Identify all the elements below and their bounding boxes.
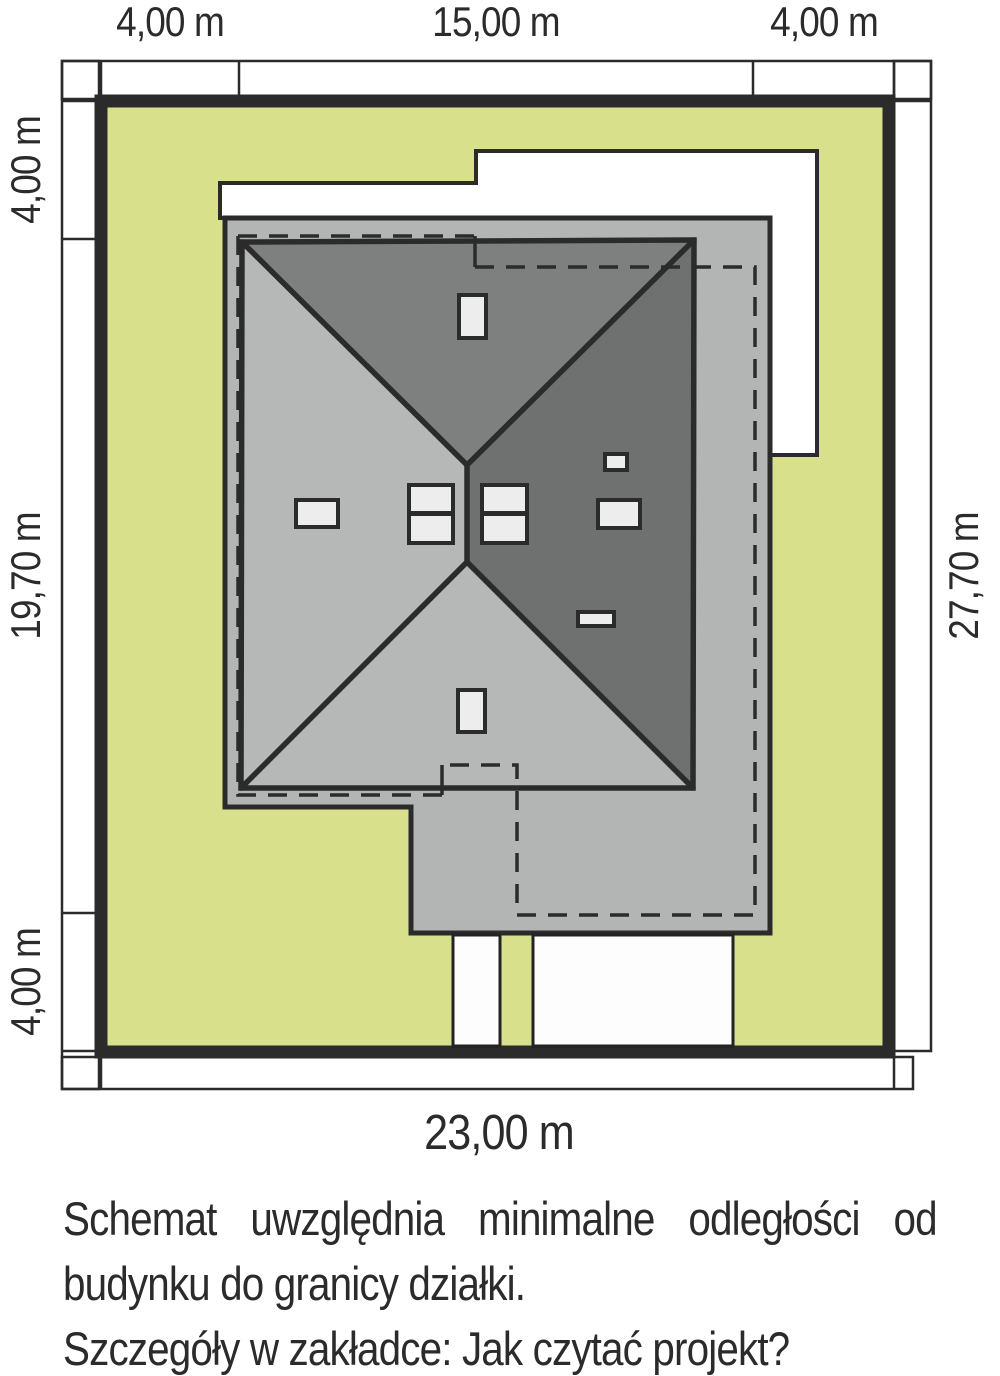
dimension-label-top-middle: 15,00 m bbox=[432, 0, 559, 46]
notes-text: Schemat uwzględnia minimalne odległości … bbox=[63, 1186, 937, 1376]
chimney bbox=[409, 485, 453, 513]
site-plan-drawing bbox=[0, 0, 1000, 1100]
dimension-label-right: 27,70 m bbox=[940, 512, 988, 639]
dimension-label-left-middle: 19,70 m bbox=[2, 512, 50, 639]
dimension-label-left-bottom: 4,00 m bbox=[2, 928, 50, 1036]
notes-line-2: budynku do granicy działki. bbox=[63, 1251, 937, 1316]
chimney bbox=[598, 500, 640, 528]
vent-stack bbox=[578, 612, 614, 626]
dimension-label-top-right: 4,00 m bbox=[770, 0, 878, 46]
dimension-label-left-top: 4,00 m bbox=[2, 116, 50, 224]
chimney bbox=[409, 514, 453, 543]
walkway-path bbox=[453, 935, 500, 1046]
roof-window bbox=[459, 295, 486, 338]
roof-window bbox=[296, 500, 338, 527]
dimension-ruler-right bbox=[894, 61, 931, 1051]
notes-line-3: Szczegóły w zakładce: Jak czytać projekt… bbox=[63, 1316, 937, 1376]
notes-line-1: Schemat uwzględnia minimalne odległości … bbox=[63, 1186, 937, 1251]
chimney bbox=[482, 485, 527, 513]
site-plan: 4,00 m 15,00 m 4,00 m 4,00 m 19,70 m 4,0… bbox=[0, 0, 1000, 1376]
dimension-label-bottom: 23,00 m bbox=[424, 1105, 574, 1161]
dimension-ruler-top bbox=[62, 61, 931, 99]
vent-stack bbox=[605, 454, 627, 470]
dimension-label-top-left: 4,00 m bbox=[116, 0, 224, 46]
dimension-ruler-bottom bbox=[62, 1057, 913, 1089]
driveway-path bbox=[533, 935, 733, 1046]
chimney bbox=[482, 514, 527, 543]
roof-window bbox=[458, 690, 485, 732]
dimension-ruler-left bbox=[62, 61, 99, 1089]
